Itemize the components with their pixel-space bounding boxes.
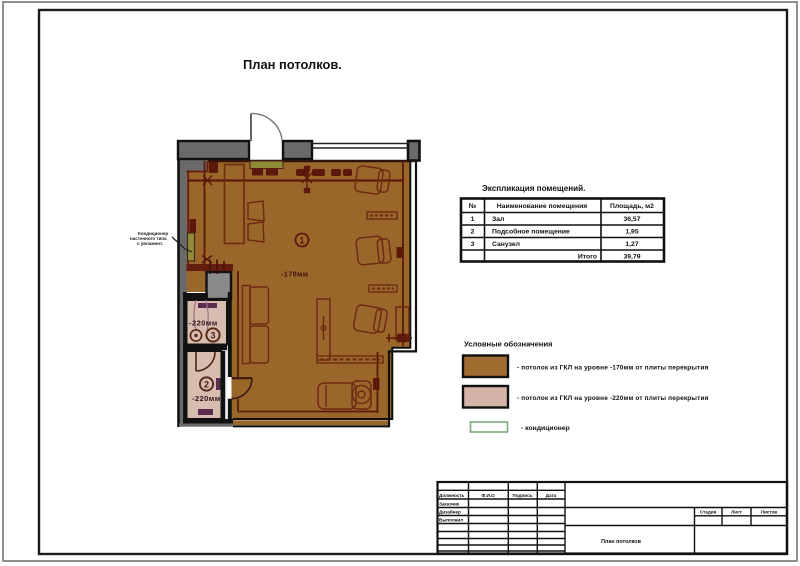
svg-text:- потолок из ГКЛ на уровне -1: - потолок из ГКЛ на уровне -170мм от пли… <box>517 365 709 372</box>
svg-text:-170мм: -170мм <box>281 270 308 279</box>
svg-text:Санузел: Санузел <box>492 241 520 248</box>
svg-text:3: 3 <box>471 241 475 248</box>
svg-text:3: 3 <box>210 331 215 341</box>
svg-text:Условные обозначения: Условные обозначения <box>464 340 552 349</box>
svg-text:План потолков.: План потолков. <box>243 57 342 72</box>
svg-text:- кондиционер: - кондиционер <box>521 425 570 432</box>
svg-text:Листов: Листов <box>761 510 778 515</box>
svg-text:с увлажнит.: с увлажнит. <box>137 241 163 246</box>
svg-text:1,95: 1,95 <box>625 229 638 236</box>
svg-text:Дата: Дата <box>546 493 557 498</box>
svg-text:Наименование помещения: Наименование помещения <box>497 203 588 210</box>
svg-text:Экспликация помещений.: Экспликация помещений. <box>482 184 585 193</box>
svg-text:1,27: 1,27 <box>625 241 638 248</box>
svg-text:№: № <box>469 203 477 210</box>
svg-text:Ф.И.О: Ф.И.О <box>481 493 495 498</box>
svg-text:2: 2 <box>204 380 209 390</box>
svg-text:Должность: Должность <box>439 493 465 498</box>
svg-text:Итого: Итого <box>578 254 597 261</box>
svg-text:Дизайнер: Дизайнер <box>439 509 461 515</box>
svg-text:1: 1 <box>471 216 475 223</box>
svg-text:- потолок из ГКЛ на уровне -2: - потолок из ГКЛ на уровне -220мм от пли… <box>517 395 709 402</box>
svg-text:2: 2 <box>471 229 475 236</box>
svg-text:План потолков: План потолков <box>601 539 642 545</box>
svg-text:Стадия: Стадия <box>700 510 717 515</box>
svg-text:-220мм: -220мм <box>189 319 218 328</box>
svg-text:1: 1 <box>299 236 304 246</box>
svg-text:Заказчик: Заказчик <box>439 502 460 507</box>
svg-text:39,79: 39,79 <box>623 254 640 261</box>
svg-text:Выполнил: Выполнил <box>439 518 463 523</box>
svg-text:-220мм: -220мм <box>192 394 221 403</box>
svg-text:Лист: Лист <box>731 510 743 515</box>
svg-text:36,57: 36,57 <box>623 216 640 223</box>
svg-text:Подсобное помещение: Подсобное помещение <box>492 228 570 236</box>
svg-text:Площадь, м2: Площадь, м2 <box>610 203 654 210</box>
svg-text:Подпись: Подпись <box>513 493 533 498</box>
svg-text:Зал: Зал <box>492 216 504 223</box>
